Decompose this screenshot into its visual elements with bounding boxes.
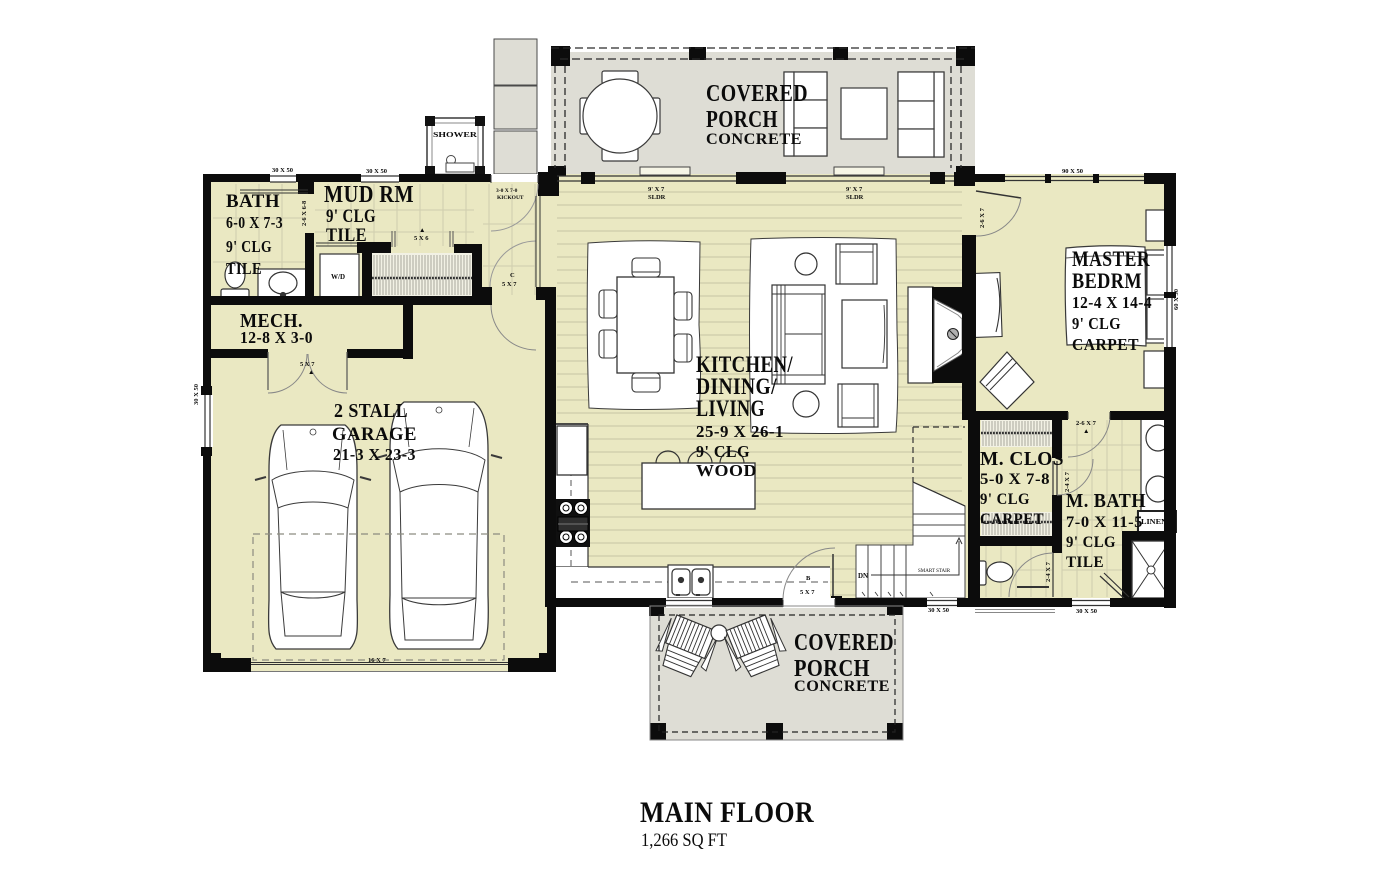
svg-text:GARAGE: GARAGE [332,424,417,445]
svg-text:▲: ▲ [1083,428,1089,435]
svg-text:CARPET: CARPET [1072,335,1139,354]
svg-text:30 X 50: 30 X 50 [1076,608,1097,615]
svg-text:COVERED: COVERED [794,630,894,656]
svg-text:WOOD: WOOD [696,461,757,480]
svg-text:9' CLG: 9' CLG [226,237,272,256]
svg-text:60 X 50: 60 X 50 [1173,289,1180,310]
svg-text:9' CLG: 9' CLG [980,491,1030,508]
svg-text:CARPET: CARPET [980,511,1044,528]
svg-text:30 X 50: 30 X 50 [366,168,387,175]
svg-text:1,266 SQ FT: 1,266 SQ FT [641,830,727,851]
svg-text:DN: DN [858,572,868,580]
svg-text:30 X 50: 30 X 50 [928,607,949,614]
svg-text:LINEN: LINEN [1141,517,1168,526]
svg-text:9' CLG: 9' CLG [696,442,750,461]
svg-text:5-0 X 7-8: 5-0 X 7-8 [980,471,1050,488]
svg-text:MUD RM: MUD RM [324,182,414,208]
svg-text:▲: ▲ [308,369,314,376]
svg-text:12-4 X 14-4: 12-4 X 14-4 [1072,293,1152,312]
svg-text:COVERED: COVERED [706,81,808,107]
svg-text:9' CLG: 9' CLG [1072,314,1121,333]
svg-text:CONCRETE: CONCRETE [794,678,890,695]
svg-text:3-0 X 7-0: 3-0 X 7-0 [496,188,518,194]
svg-text:5 X 6: 5 X 6 [414,235,429,242]
svg-text:2-6 X 7: 2-6 X 7 [1076,420,1097,427]
svg-text:21-3 X 23-3: 21-3 X 23-3 [333,445,416,464]
svg-text:CONCRETE: CONCRETE [706,131,802,148]
svg-text:2 STALL: 2 STALL [334,400,408,422]
svg-text:LIVING: LIVING [696,396,765,421]
svg-text:PORCH: PORCH [706,107,778,133]
svg-text:30 X 50: 30 X 50 [193,384,200,405]
svg-text:M. BATH: M. BATH [1066,491,1146,512]
svg-text:7-0 X 11-5: 7-0 X 11-5 [1066,514,1143,531]
svg-text:9' CLG: 9' CLG [326,206,376,227]
svg-text:C: C [510,272,515,279]
svg-text:2-6 X 7: 2-6 X 7 [979,207,986,228]
svg-text:BEDRM: BEDRM [1072,268,1142,293]
svg-text:2-6 X 6-8: 2-6 X 6-8 [301,200,308,226]
svg-text:KICKOUT: KICKOUT [497,195,524,201]
svg-text:2-4 X 7: 2-4 X 7 [1064,471,1071,492]
svg-text:9' CLG: 9' CLG [1066,534,1116,551]
svg-text:5 X 7: 5 X 7 [300,361,315,368]
svg-text:SLDR: SLDR [648,194,666,201]
svg-text:TILE: TILE [226,259,262,278]
svg-text:30 X 50: 30 X 50 [272,167,293,174]
svg-text:6-0 X 7-3: 6-0 X 7-3 [226,213,283,232]
svg-text:90 X 50: 90 X 50 [1062,168,1083,175]
svg-text:16 X 7: 16 X 7 [368,657,386,664]
svg-text:M. CLOS: M. CLOS [980,449,1064,470]
svg-text:TILE: TILE [326,225,367,246]
svg-text:W/D: W/D [331,273,345,281]
svg-text:9' X 7: 9' X 7 [648,186,665,193]
svg-text:25-9 X 26-1: 25-9 X 26-1 [696,422,784,441]
svg-text:2-4 X 7: 2-4 X 7 [1045,561,1052,582]
svg-text:▲: ▲ [419,227,425,234]
svg-text:BATH: BATH [226,191,280,212]
svg-text:TILE: TILE [1066,554,1104,571]
svg-text:SMART STAIR: SMART STAIR [918,569,951,574]
svg-text:SHOWER: SHOWER [433,130,478,139]
svg-text:5 X 7: 5 X 7 [800,589,815,596]
svg-text:MAIN FLOOR: MAIN FLOOR [640,796,814,829]
svg-text:9' X 7: 9' X 7 [846,186,863,193]
svg-text:SLDR: SLDR [846,194,864,201]
svg-text:B: B [806,575,811,582]
svg-text:12-8 X 3-0: 12-8 X 3-0 [240,328,313,347]
svg-text:5 X 7: 5 X 7 [502,281,517,288]
